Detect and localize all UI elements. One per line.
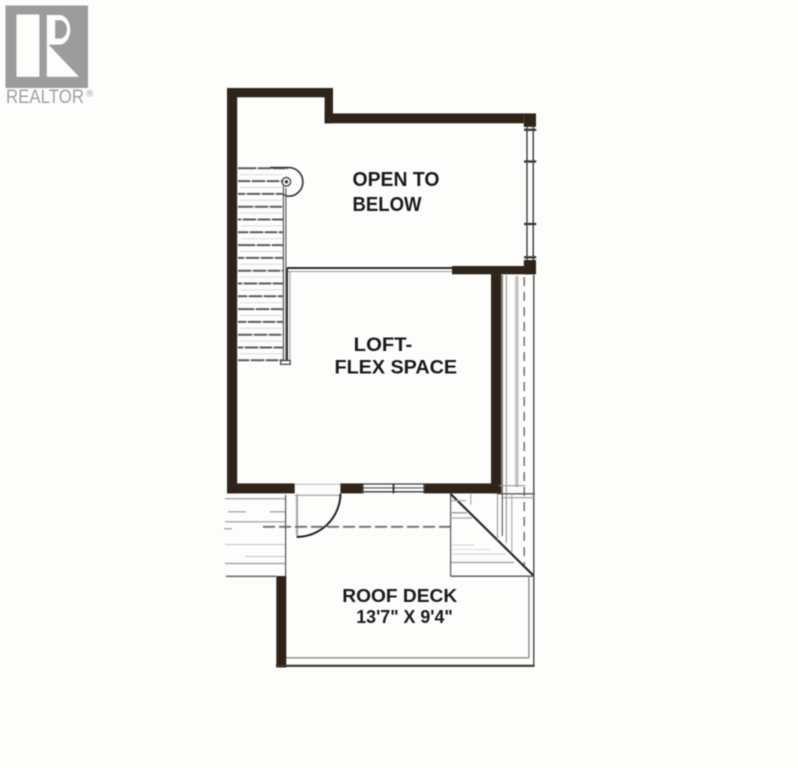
svg-text:®: ®	[86, 88, 93, 99]
svg-text:LOFT-: LOFT-	[354, 334, 413, 356]
svg-text:ROOF DECK: ROOF DECK	[342, 585, 458, 606]
svg-text:13'7" X 9'4": 13'7" X 9'4"	[356, 606, 453, 627]
svg-text:FLEX SPACE: FLEX SPACE	[335, 357, 458, 379]
svg-text:REALTOR: REALTOR	[6, 86, 84, 108]
svg-text:OPEN TO: OPEN TO	[353, 169, 440, 191]
svg-text:BELOW: BELOW	[353, 194, 422, 216]
